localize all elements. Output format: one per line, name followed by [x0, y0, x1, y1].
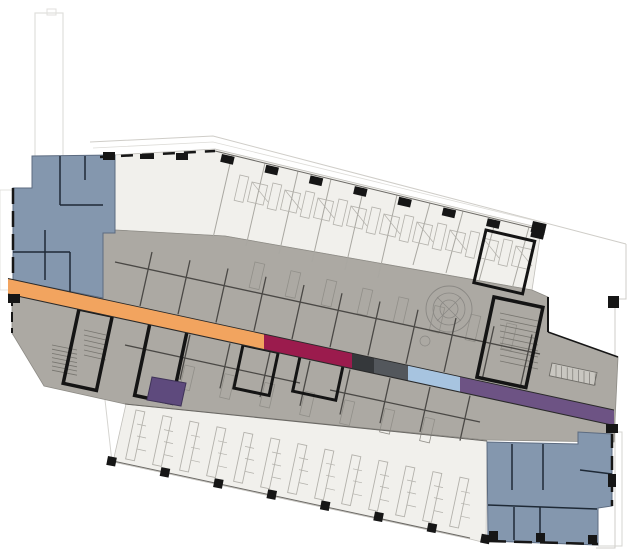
column-left-1 — [8, 294, 20, 303]
column-tl-1 — [140, 154, 154, 159]
column-right-3 — [608, 474, 616, 487]
column-br-3 — [588, 535, 597, 544]
zone-blue-upper-left — [13, 155, 115, 298]
column-br-1 — [489, 531, 498, 540]
column-br-2 — [536, 533, 545, 542]
floor-plan-canvas — [0, 0, 640, 559]
column-tl-2 — [176, 153, 188, 160]
terrace-left — [0, 190, 13, 290]
column-right-2 — [606, 424, 618, 433]
column-right-1 — [608, 296, 619, 308]
column-tl-corner — [103, 152, 115, 160]
shaft-outline — [35, 13, 63, 157]
floor-plan-svg — [0, 0, 640, 559]
shaft-tab — [47, 9, 56, 15]
zone-blue-bottom-right — [487, 432, 612, 545]
